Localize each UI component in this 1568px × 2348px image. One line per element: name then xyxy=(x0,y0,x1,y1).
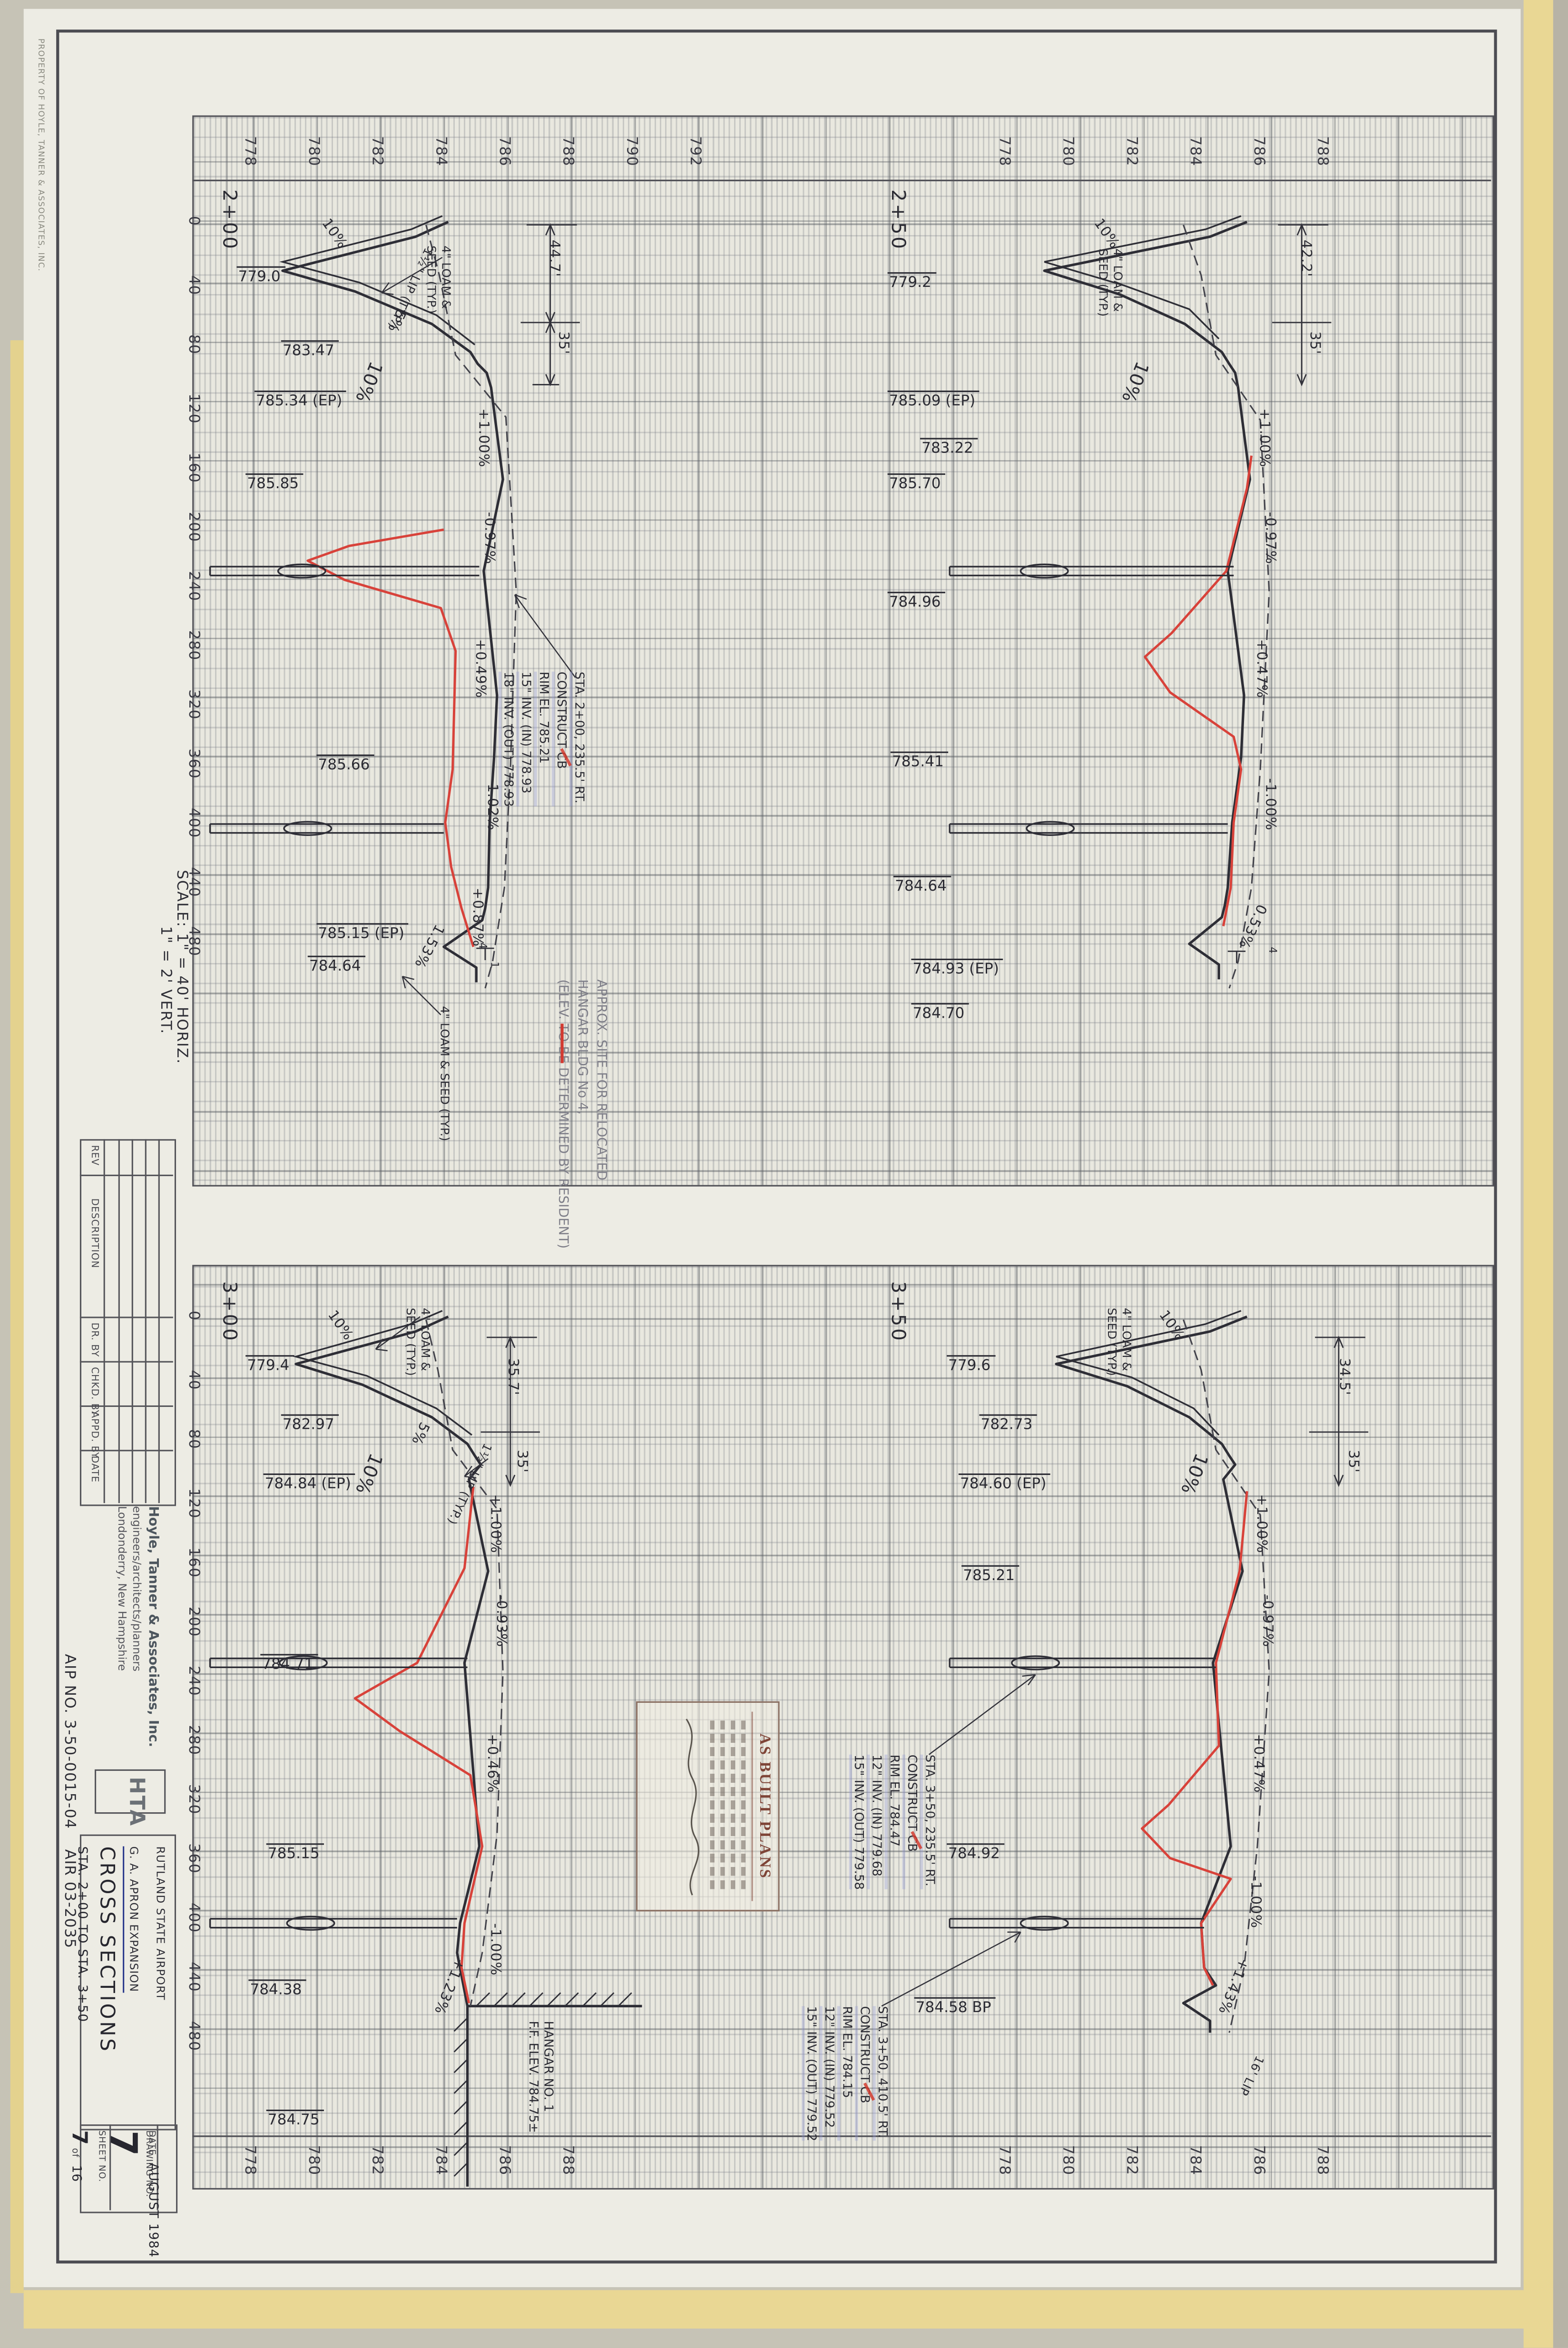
as-built-stamp-title: AS BUILT PLANS xyxy=(752,1712,773,1901)
stamp-signature xyxy=(677,1712,704,1901)
elevation-scale-label: 778 xyxy=(241,136,257,167)
station-scale-label: 400 xyxy=(185,808,201,838)
annotation: +0.47% xyxy=(1250,1734,1266,1793)
rev-header: DR. BY xyxy=(89,1323,101,1357)
annotation: 44.7' xyxy=(546,240,562,277)
note-block: 4" LOAM &SEED (TYP.) xyxy=(402,1308,432,1376)
annotation: -1.00% xyxy=(1247,1876,1263,1928)
annotation: 784.75 xyxy=(266,2110,324,2129)
rev-table-line xyxy=(145,1139,147,1503)
station-scale-label: 320 xyxy=(185,1784,201,1815)
station-scale-label: 360 xyxy=(185,1843,201,1874)
station-scale-label: 280 xyxy=(185,630,201,661)
station-scale-label: 440 xyxy=(185,867,201,897)
station-scale-label: 200 xyxy=(185,1607,201,1637)
annotation: 35' xyxy=(513,1450,529,1473)
station-scale-label: 40 xyxy=(185,275,201,295)
elevation-scale-label: 788 xyxy=(559,2145,575,2176)
elevation-scale-label: 786 xyxy=(1250,2145,1266,2176)
annotation: 35' xyxy=(1344,1450,1361,1473)
sheet-subtitle: STA. 2+00 TO STA. 3+50 xyxy=(71,1847,90,2053)
station-scale-label: 200 xyxy=(185,512,201,542)
annotation: 784.84 (EP) xyxy=(263,1474,355,1493)
station-scale-label: 320 xyxy=(185,689,201,720)
elevation-scale-label: 790 xyxy=(623,136,639,167)
elevation-scale-label: 786 xyxy=(1250,136,1266,167)
note-block: 4" LOAM & SEED (TYP.) xyxy=(436,1006,451,1141)
sheet-title: CROSS SECTIONS xyxy=(90,1847,123,2053)
elevation-scale-label: 780 xyxy=(305,2145,321,2176)
annotation: 784.38 xyxy=(248,1979,306,1998)
station-scale-label: 120 xyxy=(185,393,201,424)
annotation: 4 xyxy=(1266,947,1278,954)
elevation-scale-label: 788 xyxy=(559,136,575,167)
station-scale-label: 360 xyxy=(185,748,201,779)
annotation: +1.00% xyxy=(1256,408,1272,467)
annotation: 4 xyxy=(476,943,488,950)
elevation-scale-label: 782 xyxy=(368,136,384,167)
hta-logo: HTA xyxy=(124,1777,148,1827)
annotation: 782.73 xyxy=(979,1415,1037,1434)
station-scale-label: 400 xyxy=(185,1903,201,1933)
annotation: +1.00% xyxy=(1253,1494,1269,1553)
station-scale-label: 0 xyxy=(185,216,201,226)
stamp-fine-print xyxy=(710,1720,715,1892)
note-block: HANGAR NO. 1F.F. ELEV. 784.75± xyxy=(527,2021,556,2133)
station-scale-label: 480 xyxy=(185,2021,201,2051)
note-block: STA. 2+00, 235.5' RT.CONSTRUCT CBRIM EL.… xyxy=(499,672,588,807)
station-scale-label: 80 xyxy=(185,334,201,355)
annotation: 785.85 xyxy=(245,473,303,492)
annotation: 785.34 (EP) xyxy=(255,391,347,410)
station-scale-label: 240 xyxy=(185,571,201,601)
elevation-scale-label: 788 xyxy=(1313,136,1330,167)
rev-header: DESCRIPTION xyxy=(89,1199,101,1268)
elevation-scale-label: 792 xyxy=(686,136,703,167)
annotation: 783.47 xyxy=(281,340,339,359)
annotation: 782.97 xyxy=(281,1415,339,1434)
backing-strip-right xyxy=(1524,0,1553,2348)
elevation-scale-label: 778 xyxy=(241,2145,257,2176)
rev-table-line xyxy=(80,1175,173,1176)
elevation-scale-label: 784 xyxy=(432,2145,448,2176)
annotation: -0.97% xyxy=(1262,512,1278,564)
annotation: -1.02% xyxy=(484,778,500,831)
annotation: 779.6 xyxy=(947,1355,995,1374)
annotation: 785.09 (EP) xyxy=(888,391,980,410)
stamp-fine-print xyxy=(720,1720,725,1892)
project-owner: RUTLAND STATE AIRPORT xyxy=(152,1847,168,2053)
as-built-stamp: AS BUILT PLANS xyxy=(636,1701,780,1912)
annotation: 785.70 xyxy=(888,473,945,492)
note-block: STA. 3+50, 410.5' RT.CONSTRUCT CBRIM EL.… xyxy=(802,2006,891,2141)
elevation-scale-label: 784 xyxy=(1186,2145,1203,2176)
note-block: APPROX. SITE FOR RELOCATEDHANGAR BLDG No… xyxy=(552,979,609,1248)
annotation: 1 xyxy=(488,962,500,969)
project-program: G. A. APRON EXPANSION xyxy=(123,1847,142,1992)
annotation: 784.64 xyxy=(308,956,365,975)
annotation: 35' xyxy=(1306,332,1323,355)
annotation: -0.97% xyxy=(481,512,497,564)
annotation: 42.2' xyxy=(1297,240,1313,277)
elevation-scale-label: 782 xyxy=(1123,2145,1139,2176)
section-station-label: 2+00 xyxy=(217,189,240,251)
elevation-scale-label: 788 xyxy=(1313,2145,1330,2176)
elevation-scale-label: 780 xyxy=(1059,2145,1075,2176)
backing-strip-left xyxy=(10,340,24,2293)
note-block: 4" LOAM &SEED (TYP.) xyxy=(1104,1308,1133,1376)
station-scale-label: 160 xyxy=(185,1547,201,1578)
rev-table-line xyxy=(132,1139,133,1503)
elevation-scale-label: 786 xyxy=(496,2145,512,2176)
annotation: -0.97% xyxy=(1259,1595,1275,1647)
annotation: 784.93 (EP) xyxy=(911,959,1003,978)
annotation: 785.66 xyxy=(316,755,374,774)
sheet-no-cell: SHEET NO. 7 of 16 xyxy=(67,2131,107,2182)
annotation: 779.2 xyxy=(888,272,936,291)
drawing-sheet: PROPERTY OF HOYLE, TANNER & ASSOCIATES, … xyxy=(0,0,1568,2348)
annotation: 34.5' xyxy=(1336,1358,1352,1395)
note-block: STA. 3+50, 235.5' RT.CONSTRUCT CBRIM EL.… xyxy=(849,1755,938,1890)
annotation: +0.46% xyxy=(484,1734,500,1793)
elevation-scale-label: 782 xyxy=(368,2145,384,2176)
elevation-scale-label: 784 xyxy=(1186,136,1203,167)
elevation-scale-label: 780 xyxy=(1059,136,1075,167)
rev-table-line xyxy=(104,1139,105,1503)
annotation: -1.00% xyxy=(1262,778,1278,831)
stamp-fine-print xyxy=(731,1720,735,1892)
annotation: 784.92 xyxy=(947,1843,1004,1862)
section-station-label: 2+50 xyxy=(886,189,909,251)
station-scale-label: 0 xyxy=(185,1311,201,1321)
station-scale-label: 280 xyxy=(185,1725,201,1756)
section-station-label: 3+00 xyxy=(217,1281,240,1343)
project-block: RUTLAND STATE AIRPORT G. A. APRON EXPANS… xyxy=(71,1847,168,2053)
station-scale-label: 80 xyxy=(185,1429,201,1450)
station-scale-label: 120 xyxy=(185,1488,201,1519)
elevation-scale-label: 786 xyxy=(496,136,512,167)
station-scale-label: 240 xyxy=(185,1666,201,1696)
annotation: 779.4 xyxy=(245,1355,294,1374)
elevation-scale-label: 778 xyxy=(996,2145,1012,2176)
backing-strip-right-outer xyxy=(1553,0,1568,2348)
annotation: 785.15 xyxy=(266,1843,324,1862)
annotation: 784.60 (EP) xyxy=(959,1474,1051,1493)
elevation-scale-label: 784 xyxy=(432,136,448,167)
annotation: +0.87% xyxy=(469,888,485,947)
note-block: 4" LOAM &SEED (TYP.) xyxy=(1095,248,1124,316)
backing-strip-bottom xyxy=(24,2290,1527,2328)
annotation: 35.7' xyxy=(504,1358,520,1395)
annotation: 784.64 xyxy=(893,876,951,895)
rev-table-line xyxy=(158,1139,160,1503)
annotation: +1.00% xyxy=(475,408,491,467)
annotation: 784.58 BP xyxy=(914,1997,996,2016)
elevation-scale-label: 780 xyxy=(305,136,321,167)
annotation: 785.21 xyxy=(961,1565,1019,1584)
rev-header: APPD. BY xyxy=(89,1411,101,1458)
elevation-scale-label: 782 xyxy=(1123,136,1139,167)
rev-header: REV xyxy=(89,1145,101,1166)
annotation: 784.96 xyxy=(888,592,945,611)
annotation: -0.93% xyxy=(492,1595,509,1647)
drawing-number: 7 xyxy=(104,2131,142,2198)
annotation: +0.49% xyxy=(472,639,488,698)
annotation: 784.71 xyxy=(260,1654,318,1673)
stamp-fine-print xyxy=(741,1720,745,1892)
station-scale-label: 40 xyxy=(185,1370,201,1390)
aip-number: AIP NO. 3-50-0015-04 xyxy=(60,1654,77,1829)
station-scale-label: 480 xyxy=(185,926,201,956)
station-scale-label: 160 xyxy=(185,452,201,483)
annotation: +1.00% xyxy=(487,1494,503,1553)
elevation-scale-label: 778 xyxy=(996,136,1012,167)
rev-table-line xyxy=(118,1139,120,1503)
annotation: 785.41 xyxy=(891,752,948,771)
rev-table-line xyxy=(80,1361,173,1363)
annotation: 779.0 xyxy=(237,266,285,285)
firm-block: Hoyle, Tanner & Associates, Inc. enginee… xyxy=(116,1506,160,1747)
annotation: -1.00% xyxy=(487,1923,503,1975)
property-stamp: PROPERTY OF HOYLE, TANNER & ASSOCIATES, … xyxy=(36,39,45,272)
station-scale-label: 440 xyxy=(185,1962,201,1992)
annotation: 784.70 xyxy=(911,1003,969,1022)
date-cell: DATE AUGUST 1984 xyxy=(144,2131,172,2258)
annotation: 785.15 (EP) xyxy=(316,923,409,942)
annotation: 35' xyxy=(555,332,571,355)
rev-table-line xyxy=(80,1316,173,1318)
rev-header: DATE xyxy=(89,1456,101,1483)
scale-note: SCALE: 1" = 40' HORIZ. 1" = 2' VERT. xyxy=(157,870,189,1064)
section-station-label: 3+50 xyxy=(886,1281,909,1343)
annotation: +0.47% xyxy=(1253,639,1269,698)
note-block: 4" LOAM &SEED (TYP.) xyxy=(423,246,452,314)
annotation: 783.22 xyxy=(920,438,978,457)
rev-header: CHKD. BY xyxy=(89,1367,101,1416)
